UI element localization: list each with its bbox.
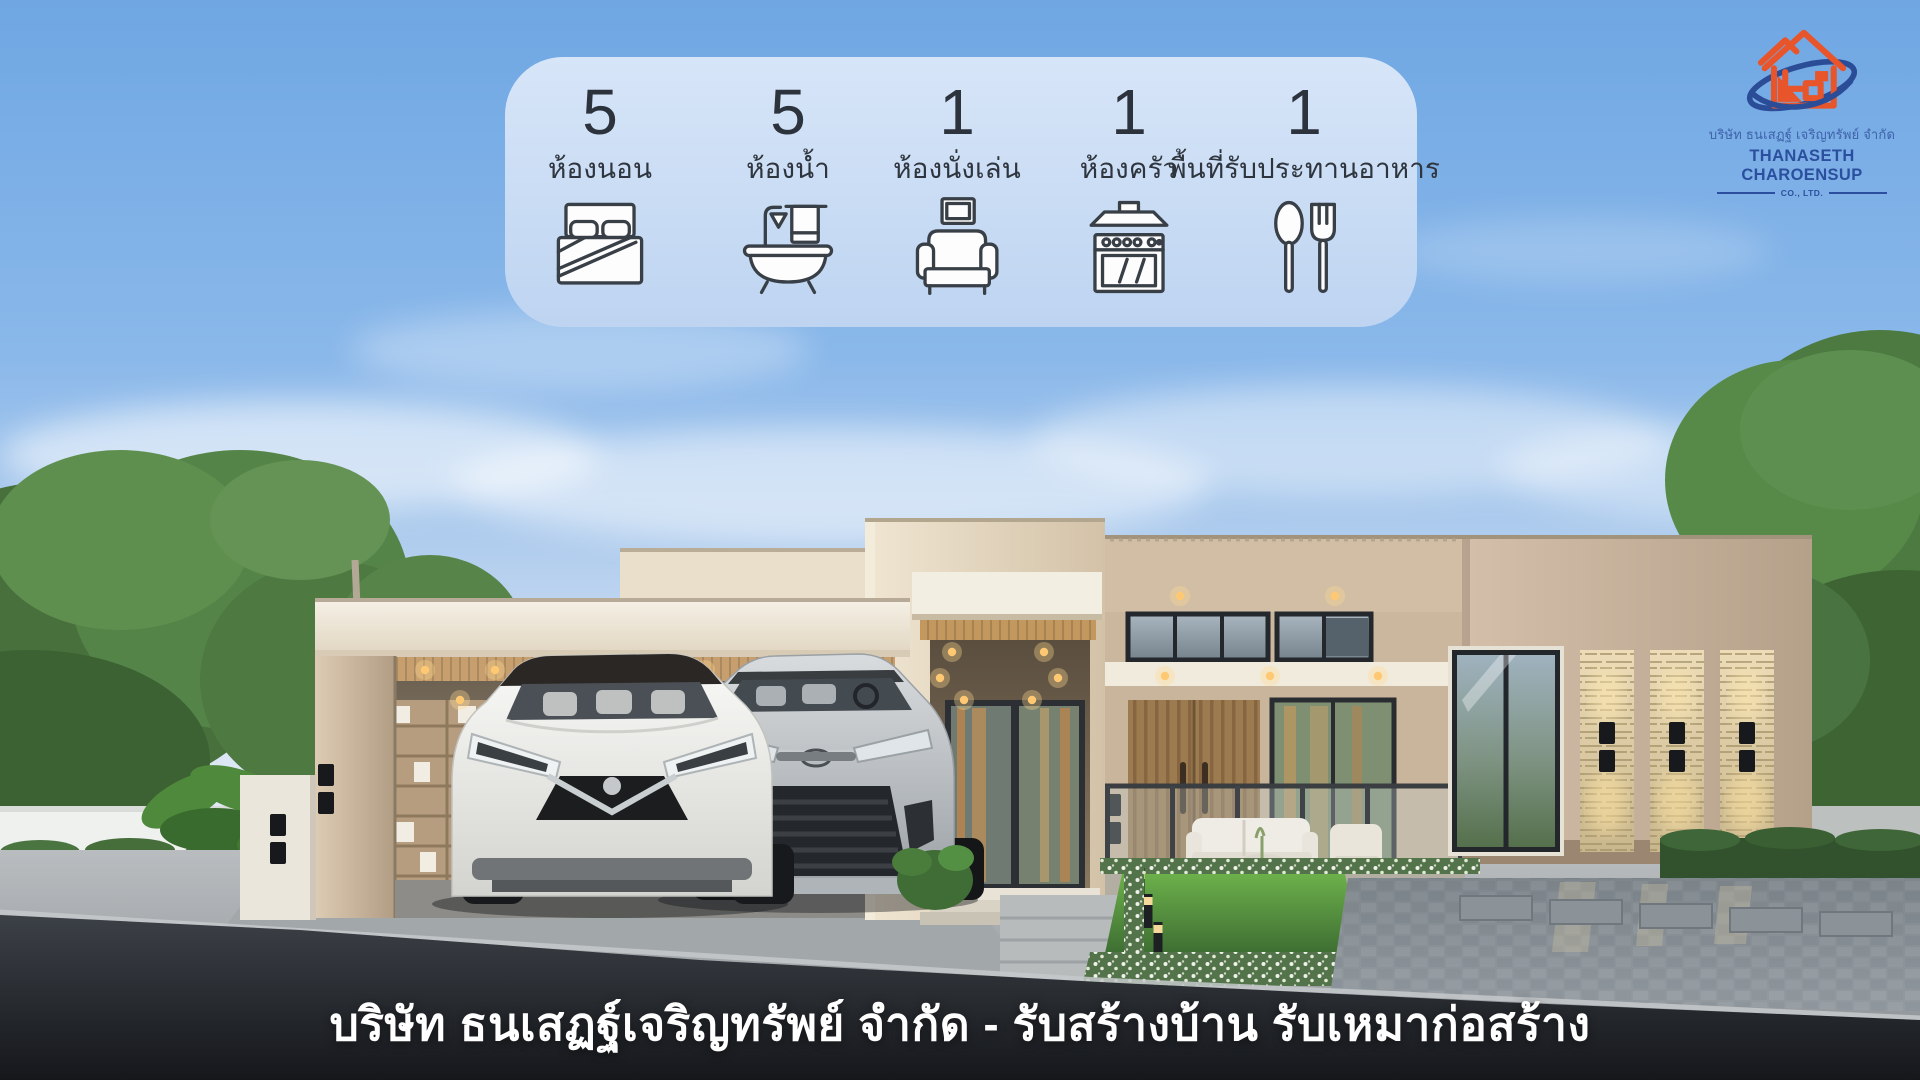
armchair-icon [897, 195, 1017, 299]
suffix-line-right [1829, 192, 1887, 194]
bathroom-count: 5 [728, 77, 848, 147]
dining-area-label: พื้นที่รับประทานอาหาร [1168, 147, 1440, 191]
company-logo: บริษัท ธนเสฏฐ์ เจริญทรัพย์ จำกัด THANASE… [1688, 16, 1916, 198]
spec-item-living-room: 1 ห้องนั่งเล่น [893, 77, 1021, 299]
right-hedge [1660, 827, 1920, 884]
bed-icon [540, 195, 660, 299]
bathroom-label: ห้องน้ำ [728, 147, 848, 191]
living-room-label: ห้องนั่งเล่น [893, 147, 1021, 191]
bathtub-icon [728, 195, 848, 299]
dining-area-count: 1 [1168, 77, 1440, 147]
company-logo-icon [1727, 16, 1877, 128]
poster: 5 ห้องนอน 5 ห้องน้ำ [0, 0, 1920, 1080]
company-suffix-text: CO., LTD. [1781, 188, 1824, 198]
bedroom-label: ห้องนอน [540, 147, 660, 191]
suffix-line-left [1717, 192, 1775, 194]
gate-pillar [240, 775, 316, 920]
company-name-english: THANASETH CHAROENSUP [1688, 147, 1916, 185]
spec-item-bathroom: 5 ห้องน้ำ [728, 77, 848, 299]
spec-item-bedroom: 5 ห้องนอน [540, 77, 660, 299]
company-suffix: CO., LTD. [1688, 188, 1916, 198]
bedroom-count: 5 [540, 77, 660, 147]
spec-panel: 5 ห้องนอน 5 ห้องน้ำ [505, 57, 1417, 327]
spec-item-dining-area: 1 พื้นที่รับประทานอาหาร [1168, 77, 1440, 299]
cutlery-icon [1244, 195, 1364, 299]
caption: บริษัท ธนเสฏฐ์เจริญทรัพย์ จำกัด - รับสร้… [0, 988, 1920, 1061]
living-room-count: 1 [893, 77, 1021, 147]
company-name-thai: บริษัท ธนเสฏฐ์ เจริญทรัพย์ จำกัด [1688, 124, 1916, 145]
